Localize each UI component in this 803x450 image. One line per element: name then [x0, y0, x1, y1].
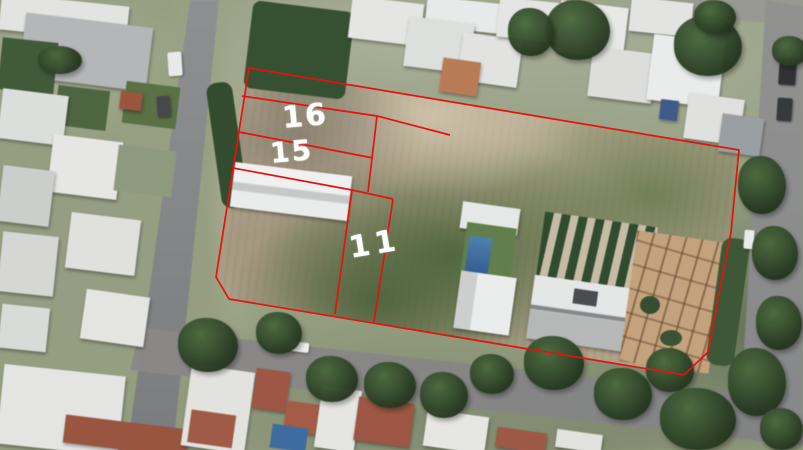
parcel-boundary-overlay	[0, 0, 803, 450]
lot-divider-line	[352, 190, 393, 199]
lot-divider-line	[368, 116, 377, 192]
lot-divider-line	[233, 168, 352, 190]
lot-divider-line	[242, 96, 450, 135]
parcel-label-16: 16	[281, 100, 329, 134]
satellite-map: 16 15 11	[0, 0, 803, 450]
parcel-label-15: 15	[269, 136, 314, 168]
parcel-label-11: 11	[347, 226, 403, 264]
